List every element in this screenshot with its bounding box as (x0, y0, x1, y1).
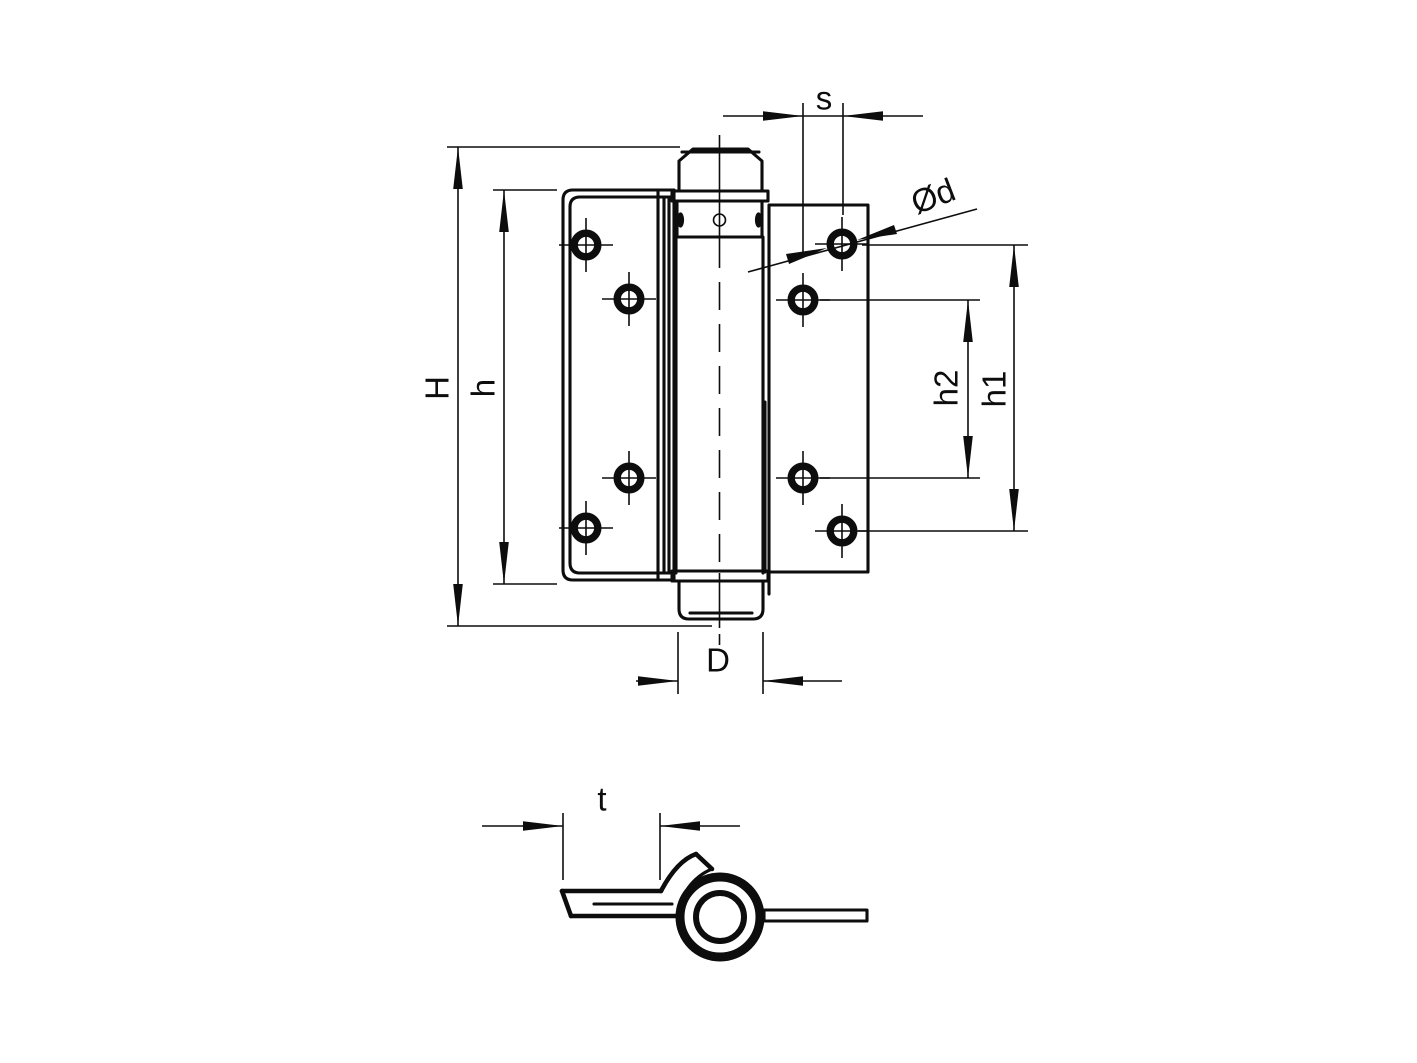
arrowhead-left (763, 676, 803, 686)
arrowhead-left (660, 821, 700, 831)
arrowhead-down (963, 436, 973, 478)
arrowhead-down-left (857, 225, 897, 240)
knuckle-outer (680, 877, 760, 957)
technical-drawing-canvas: H h s Ød (0, 0, 1417, 1063)
neck-end-chamfer (696, 854, 712, 869)
arrowhead-down (453, 584, 463, 626)
dimension-D: D (636, 632, 842, 694)
label-hole-diameter: Ød (906, 171, 960, 221)
leader-line (748, 209, 977, 272)
arrowhead-right (523, 821, 563, 831)
label-h2: h2 (928, 370, 965, 407)
label-H: H (419, 376, 456, 400)
arrowhead-up (963, 300, 973, 342)
dimension-hole-diameter: Ød (748, 171, 977, 272)
arrowhead-up (499, 190, 509, 232)
label-s: s (816, 80, 833, 117)
screw-hole (602, 451, 656, 505)
label-D: D (706, 642, 730, 679)
screw-hole (559, 218, 613, 272)
spring-barrel (672, 135, 768, 645)
tension-pin-hole-side (755, 212, 762, 227)
second-leaf-strip (764, 910, 867, 921)
arrowhead-up-right (786, 248, 827, 264)
arrowhead-left (843, 111, 883, 121)
top-cap (679, 149, 762, 191)
arrowhead-up (453, 147, 463, 189)
dimension-t: t (482, 781, 740, 881)
dimension-h2: h2 (820, 300, 980, 478)
arrowhead-down (499, 542, 509, 584)
side-view: t (482, 781, 867, 958)
arrowhead-down (1009, 489, 1019, 531)
front-view: H h s Ød (419, 80, 1029, 695)
leaf-tip-chamfer (562, 891, 571, 916)
arrowhead-right (638, 676, 678, 686)
label-t: t (597, 781, 606, 818)
second-leaf-profile (764, 910, 867, 921)
spring-hinge-drawing: H h s Ød (0, 0, 1417, 1063)
label-h: h (465, 379, 502, 397)
screw-hole (815, 217, 869, 271)
label-h1: h1 (976, 371, 1013, 408)
screw-hole (559, 501, 613, 555)
knuckle-profile (680, 877, 760, 957)
arrowhead-up (1009, 245, 1019, 287)
tension-pin-hole-side (677, 212, 684, 227)
left-leaf (559, 190, 674, 580)
screw-hole (602, 272, 656, 326)
arrowhead-right (763, 111, 803, 121)
dimension-h: h (465, 190, 558, 584)
